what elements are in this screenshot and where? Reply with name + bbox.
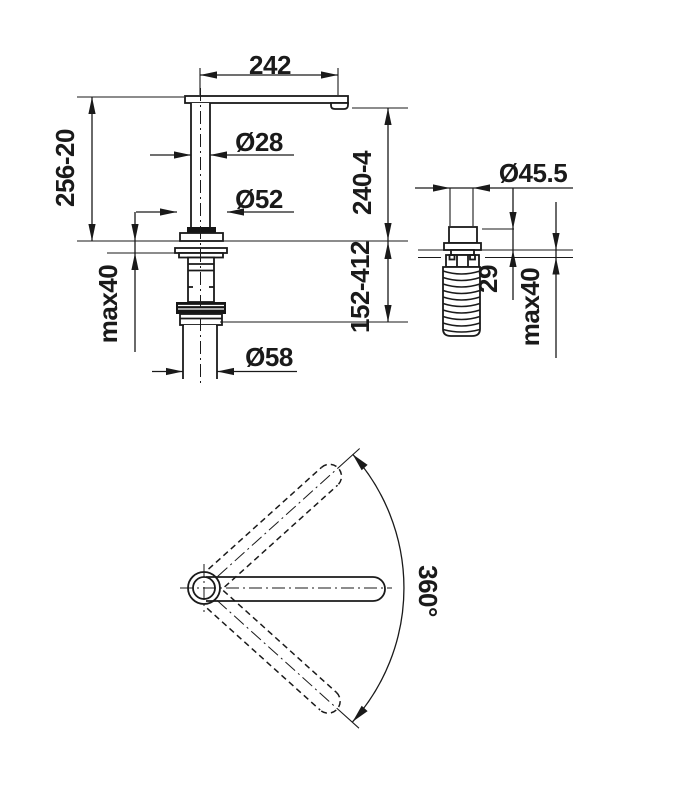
arrow (217, 368, 234, 375)
dashed-centerline (218, 469, 337, 576)
arrow (384, 223, 391, 240)
swivel-arc (353, 454, 404, 722)
arrow (321, 71, 338, 78)
dashed-edge (223, 591, 336, 693)
arrow (88, 97, 95, 114)
spout-plan-solid (206, 577, 385, 601)
dim-max-counter-left: max40 (93, 265, 123, 343)
dim-below-counter-depth: 152-412 (345, 241, 375, 333)
dim-spout-reach: 242 (249, 50, 291, 80)
dim-total-height: 256-20 (50, 129, 80, 207)
arrow (200, 71, 217, 78)
arrow (552, 258, 559, 275)
spout-nozzle (331, 103, 348, 109)
shank-cap (449, 227, 477, 243)
arrow (210, 151, 227, 158)
arrow (509, 212, 516, 229)
arrow (473, 184, 490, 191)
arrow (131, 224, 138, 241)
arrow (131, 253, 138, 270)
spout-plan-dashed-up (209, 440, 368, 587)
dashed-edge (207, 608, 320, 710)
top-view: 360° (180, 440, 443, 738)
dashed-edge (225, 485, 338, 587)
spout-bar (185, 96, 348, 103)
drawing-canvas: 242 256-20 max40 Ø28 Ø52 Ø58 (0, 0, 680, 809)
dim-body-diameter: Ø58 (245, 342, 293, 372)
arrow (350, 452, 368, 471)
arrow (384, 108, 391, 125)
arrow (384, 305, 391, 322)
dim-shank-above-counter: 29 (473, 265, 503, 293)
arrow (509, 250, 516, 267)
arrow (160, 208, 177, 215)
dim-outlet-height: 240-4 (347, 150, 377, 215)
dashed-centerline (217, 600, 336, 707)
arrow (384, 242, 391, 259)
dim-base-flange-diameter: Ø52 (235, 184, 283, 214)
dim-swivel-angle: 360° (413, 565, 443, 617)
dashed-edge (209, 467, 322, 569)
arrow (166, 368, 183, 375)
side-view: 242 256-20 max40 Ø28 Ø52 Ø58 (50, 50, 408, 384)
arrow (433, 184, 450, 191)
arrow (88, 224, 95, 241)
dim-max-counter-right: max40 (515, 268, 545, 346)
upper-flange (180, 233, 223, 241)
dim-hole-diameter: Ø45.5 (499, 158, 567, 188)
dimension-drawing: 242 256-20 max40 Ø28 Ø52 Ø58 (0, 0, 680, 809)
shank-view: Ø45.5 29 max40 (415, 158, 573, 358)
arrow (552, 233, 559, 250)
spout-plan-dashed-down (207, 591, 366, 738)
shank-flange (444, 243, 481, 250)
dim-spout-tube-diameter: Ø28 (235, 127, 283, 157)
arrow (174, 151, 191, 158)
